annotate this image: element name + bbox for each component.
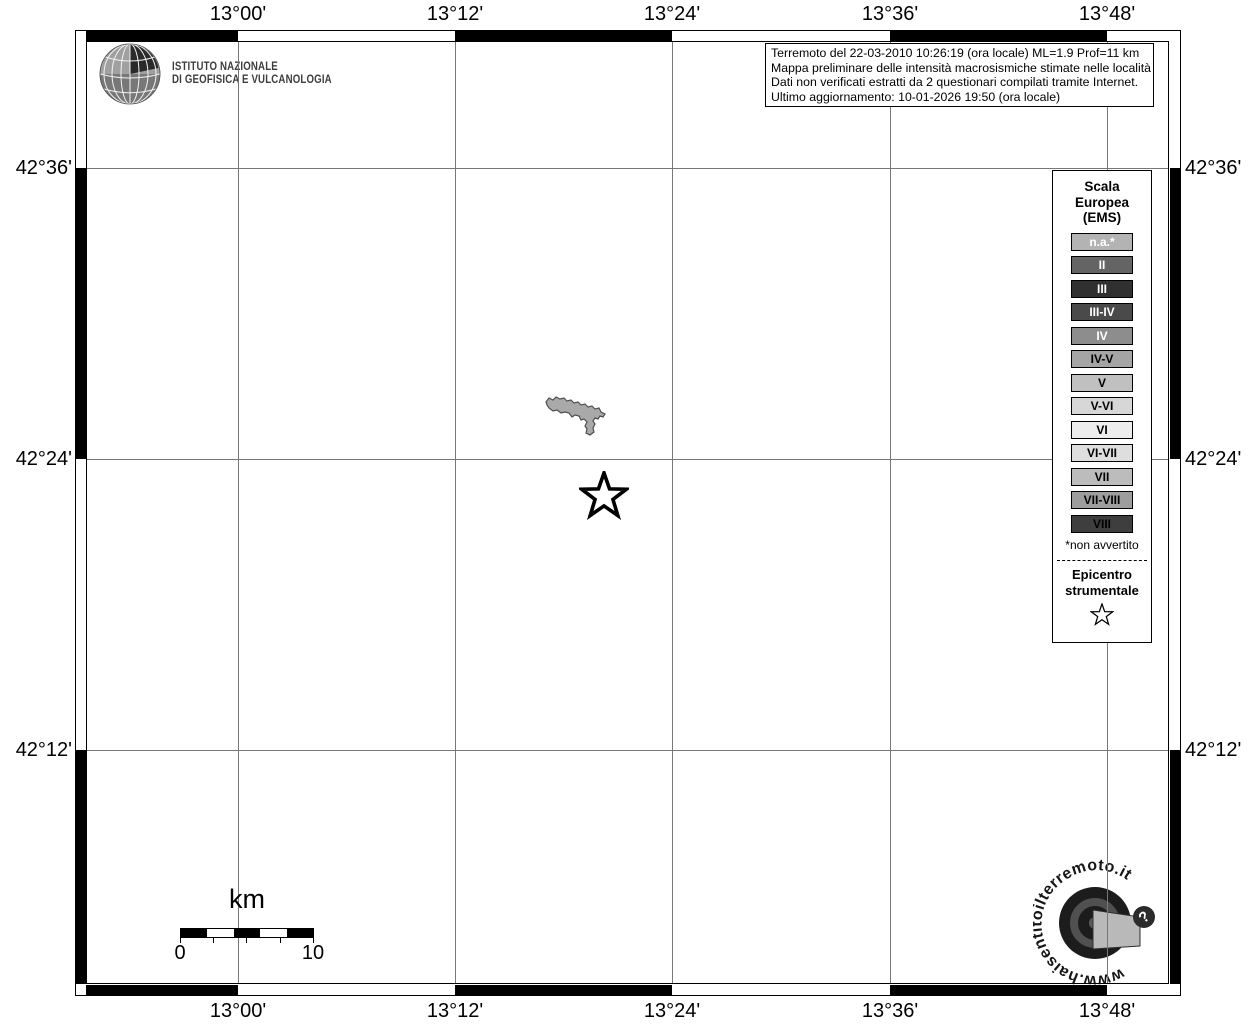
lon-label-top-1: 13°00' [184, 3, 292, 26]
epicenter-star-icon [579, 471, 629, 521]
scalebar-end-label: 10 [296, 942, 330, 965]
scalebar-segment [207, 929, 233, 937]
scalebar-tick [213, 938, 214, 943]
lake-polygon [543, 390, 609, 440]
lat-label-right-2: 42°24' [1185, 448, 1255, 471]
legend-swatch-VIII: VIII [1071, 515, 1133, 533]
event-info-line4: Ultimo aggiornamento: 10-01-2026 19:50 (… [771, 90, 1148, 105]
legend-swatch-II: II [1071, 256, 1133, 274]
legend-swatch-n.a.*: n.a.* [1071, 233, 1133, 251]
lon-label-bottom-5: 13°48' [1053, 1000, 1161, 1023]
legend-swatch-V-VI: V-VI [1071, 397, 1133, 415]
lon-label-bottom-3: 13°24' [618, 1000, 726, 1023]
scalebar-tick [280, 938, 281, 943]
frame-segment [86, 31, 238, 41]
legend-epicenter-line1: Epicentro [1053, 567, 1151, 583]
legend-footnote: *non avvertito [1053, 538, 1151, 552]
scalebar-segment [287, 929, 313, 937]
event-info-line1: Terremoto del 22-03-2010 10:26:19 (ora l… [771, 46, 1148, 61]
legend-swatch-V: V [1071, 374, 1133, 392]
frame-segment [455, 31, 672, 41]
legend-swatch-III-IV: III-IV [1071, 303, 1133, 321]
lon-label-top-4: 13°36' [836, 3, 944, 26]
legend-swatch-VII: VII [1071, 468, 1133, 486]
legend-divider [1057, 560, 1147, 561]
scalebar-segment [181, 929, 207, 937]
macroseismic-map: 13°00' 13°12' 13°24' 13°36' 13°48' 13°00… [0, 0, 1255, 1024]
frame-segment [455, 985, 672, 995]
legend-epicenter-line2: strumentale [1053, 583, 1151, 599]
frame-segment [890, 985, 1107, 995]
intensity-legend: Scala Europea (EMS) n.a.*IIIIIIII-IVIVIV… [1052, 170, 1152, 643]
legend-star-icon [1090, 603, 1114, 627]
legend-title-line1: Scala [1053, 179, 1151, 195]
legend-swatch-III: III [1071, 280, 1133, 298]
legend-swatch-VI-VII: VI-VII [1071, 444, 1133, 462]
frame-segment [1170, 750, 1180, 984]
lon-label-bottom-4: 13°36' [836, 1000, 944, 1023]
lon-label-top-5: 13°48' [1053, 3, 1161, 26]
legend-title-line2: Europea [1053, 195, 1151, 211]
frame-segment [76, 750, 86, 984]
scalebar-segment [260, 929, 286, 937]
lat-label-left-1: 42°36' [2, 157, 72, 180]
lon-label-bottom-1: 13°00' [184, 1000, 292, 1023]
legend-swatch-IV: IV [1071, 327, 1133, 345]
legend-items: n.a.*IIIIIIII-IVIVIV-VVV-VIVIVI-VIIVIIVI… [1053, 233, 1151, 533]
frame-segment [890, 31, 1107, 41]
legend-swatch-VI: VI [1071, 421, 1133, 439]
lat-label-right-3: 42°12' [1185, 739, 1255, 762]
frame-segment [1170, 168, 1180, 459]
scalebar-unit-label: km [180, 884, 314, 915]
lat-label-left-2: 42°24' [2, 448, 72, 471]
event-info-line3: Dati non verificati estratti da 2 questi… [771, 75, 1148, 90]
event-info-box: Terremoto del 22-03-2010 10:26:19 (ora l… [765, 43, 1154, 107]
scalebar-segment [234, 929, 260, 937]
lat-label-right-1: 42°36' [1185, 157, 1255, 180]
legend-swatch-VII-VIII: VII-VIII [1071, 491, 1133, 509]
legend-title-line3: (EMS) [1053, 210, 1151, 226]
scalebar [180, 928, 314, 938]
frame-segment [86, 985, 238, 995]
frame-segment [76, 168, 86, 459]
lake-shape [546, 397, 605, 435]
lon-label-top-3: 13°24' [618, 3, 726, 26]
lon-label-bottom-2: 13°12' [401, 1000, 509, 1023]
scalebar-tick [246, 938, 247, 943]
scalebar-start-label: 0 [163, 942, 197, 965]
lon-label-top-2: 13°12' [401, 3, 509, 26]
event-info-line2: Mappa preliminare delle intensità macros… [771, 61, 1148, 76]
lat-label-left-3: 42°12' [2, 739, 72, 762]
legend-swatch-IV-V: IV-V [1071, 350, 1133, 368]
